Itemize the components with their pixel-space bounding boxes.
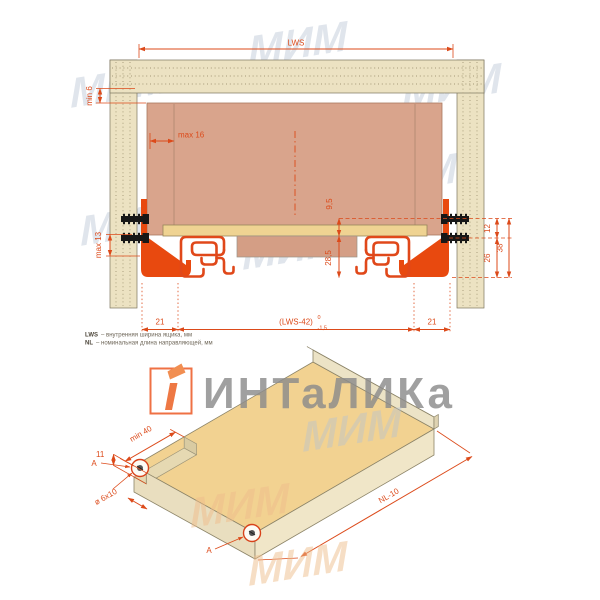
cabinet-right-wall xyxy=(457,60,484,308)
callout-label-a: A xyxy=(206,546,212,555)
drawer-bottom-panel xyxy=(163,225,427,236)
brand-logo-icon xyxy=(151,364,192,414)
dim-label-11: 11 xyxy=(96,450,105,459)
dim-label-slot: ø 6x10 xyxy=(93,487,119,507)
dim-label-lws: LWS xyxy=(288,39,305,48)
dim-label-nl10: NL-10 xyxy=(377,486,401,505)
callout-label-a: A xyxy=(91,459,97,468)
drawer-back-panel xyxy=(147,103,442,235)
dim-label-max16: max 16 xyxy=(178,131,205,140)
cabinet-left-wall xyxy=(110,60,137,308)
dim-label-12: 12 xyxy=(483,224,492,233)
dim-label-95: 9,5 xyxy=(325,198,334,210)
dimension-right-stack: 12 26 38 xyxy=(483,219,509,278)
dim-label-min40: min 40 xyxy=(128,424,154,444)
cabinet-top-panel xyxy=(110,60,484,93)
catalog-page: МИМ МИМ МИМ МИМ МИМ МИМ xyxy=(0,0,600,600)
dimension-bottom: 21 (LWS-42) 0 -1,5 21 xyxy=(142,283,450,333)
hole-detail-left xyxy=(132,460,149,477)
dim-label-285: 28,5 xyxy=(324,250,333,266)
footnote-lws: LWS– внутренняя ширина ящика, мм xyxy=(85,333,192,339)
dim-label-26: 26 xyxy=(483,253,492,262)
dim-label-tolerance-upper: 0 xyxy=(318,315,321,321)
installation-drawing: МИМ МИМ МИМ МИМ МИМ МИМ xyxy=(0,0,600,600)
legend-footnotes: LWS– внутренняя ширина ящика, мм NL– ном… xyxy=(85,333,213,347)
dim-label-38: 38 xyxy=(496,243,505,252)
dim-label-max13: max 13 xyxy=(94,231,103,258)
dim-label-21-right: 21 xyxy=(428,318,437,327)
dim-label-21-left: 21 xyxy=(156,318,165,327)
dim-label-tolerance-lower: -1,5 xyxy=(318,326,327,332)
dim-label-lws42: (LWS-42) xyxy=(279,318,313,327)
footnote-nl: NL– номинальная длина направляющей, мм xyxy=(85,340,213,347)
dim-label-min6: min 6 xyxy=(85,86,94,106)
